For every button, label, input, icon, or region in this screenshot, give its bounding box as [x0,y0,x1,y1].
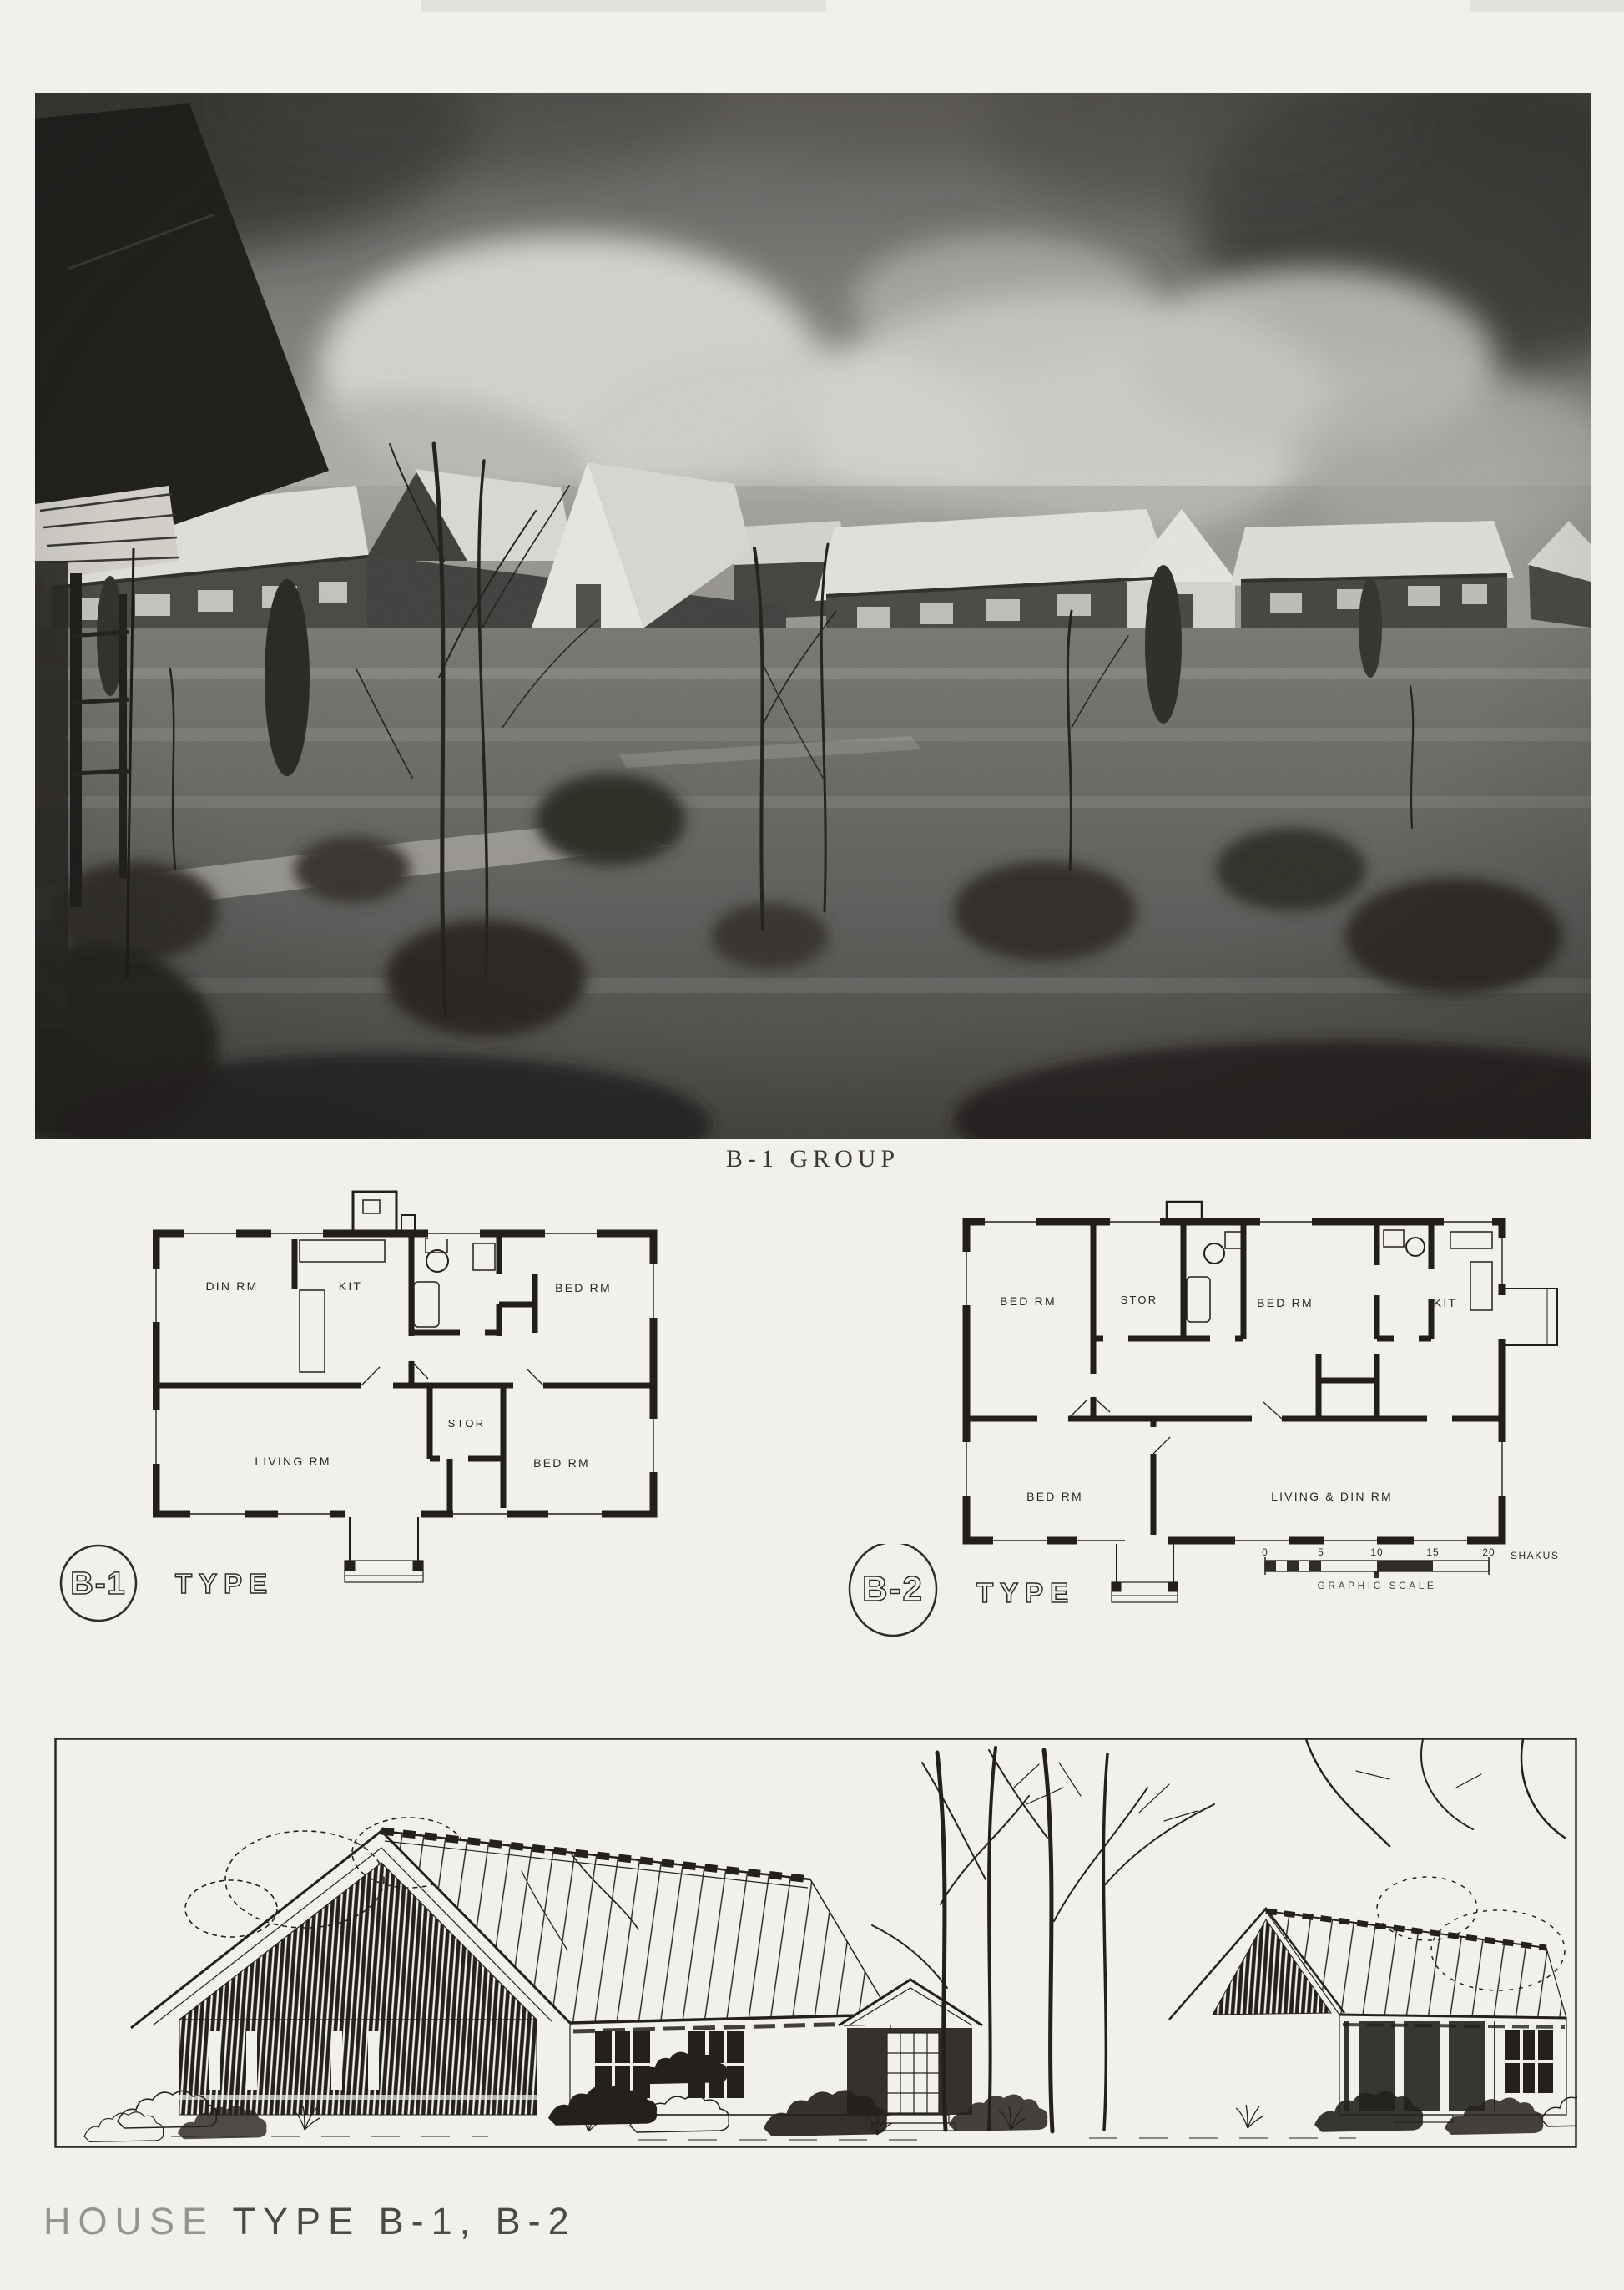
b2-badge-label: B-2 [862,1569,924,1608]
room-label-kit: KIT [339,1279,362,1293]
plan-b2-room-labels: BED RM STOR BED RM KIT BED RM LIVING & D… [1000,1294,1457,1503]
b1-type-label: TYPE [175,1568,274,1599]
room-label-bed-rm-top: BED RM [555,1281,612,1294]
scale-tick-0: 0 [1262,1546,1268,1558]
site-photograph [35,93,1591,1139]
scale-unit: SHAKUS [1511,1550,1559,1561]
room-label-stor-b2: STOR [1121,1294,1158,1306]
plan-b2-kitchen-entry [1505,1289,1557,1345]
plan-b1-porch [345,1517,423,1582]
b1-badge-label: B-1 [70,1566,126,1601]
room-label-stor: STOR [448,1417,486,1430]
room-label-bed-rm-bl: BED RM [1026,1490,1083,1503]
graphic-scale: 0 5 10 15 20 SHAKUS GRAPHIC SCALE [1250,1536,1624,1602]
scale-tick-5: 5 [1318,1546,1324,1558]
scanned-report-page: B-1 GROUP [0,0,1624,2290]
room-label-living-rm: LIVING RM [255,1455,330,1468]
floor-plan-b1: DIN RM KIT BED RM STOR LIVING RM BED RM [153,1185,663,1594]
plan-b1-title: B-1 TYPE [48,1544,324,1640]
scan-artifact-top-center [421,0,826,12]
rendering-right-house [1169,1877,1566,2122]
room-label-kit-b2: KIT [1434,1296,1457,1309]
room-label-living-din: LIVING & DIN RM [1271,1490,1393,1503]
scale-tick-20: 20 [1482,1546,1495,1558]
room-label-bed-rm-tm: BED RM [1257,1296,1314,1309]
photo-vignette [35,93,1591,1139]
plan-b2-porch [1112,1544,1178,1602]
rendering-left-house [131,1831,982,2131]
plan-b2-title: B-2 TYPE [841,1544,1117,1648]
rendering-ground [171,2136,1356,2140]
photo-caption: B-1 GROUP [35,1145,1591,1173]
scale-tick-10: 10 [1370,1546,1383,1558]
scale-label: GRAPHIC SCALE [1318,1580,1437,1591]
scale-bar [1265,1557,1489,1578]
room-label-bed-rm-bottom: BED RM [533,1456,590,1470]
scan-artifact-top-right [1470,0,1624,12]
room-label-din-rm: DIN RM [206,1279,259,1293]
plan-b1-windows [153,1228,659,1520]
scale-tick-15: 15 [1426,1546,1439,1558]
room-label-bed-rm-tl: BED RM [1000,1294,1057,1308]
b2-type-label: TYPE [976,1577,1075,1608]
page-title: HOUSE TYPE B-1, B-2 [43,2200,577,2243]
house-rendering [54,1738,1577,2148]
page-title-word: HOUSE [43,2200,214,2242]
page-title-rest: TYPE B-1, B-2 [233,2200,577,2242]
